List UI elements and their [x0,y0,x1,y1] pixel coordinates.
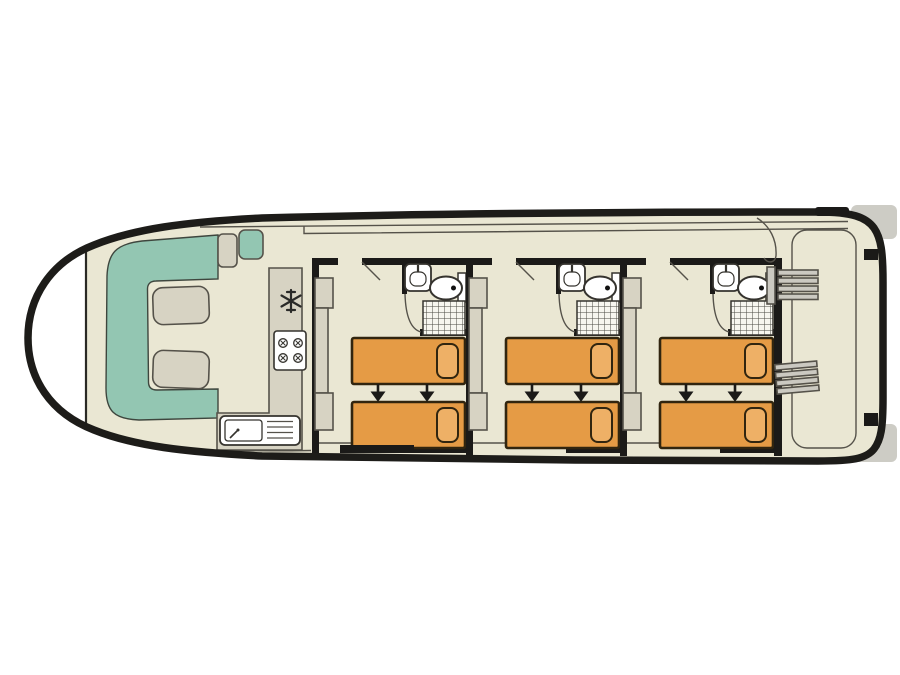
hull-notch-top [864,249,878,260]
cabin-1-bottom-wall [340,445,414,453]
shower-icon [423,301,465,335]
boat-floor-plan [0,0,900,675]
galley-sink-icon [220,416,300,445]
helm-seat-teal [239,230,263,259]
stove-icon [274,331,306,370]
hull-notch-bottom [864,413,878,426]
saloon-table [152,286,209,325]
helm-seat [218,234,237,267]
staircase-top [767,267,818,304]
floor-plan-canvas [0,0,900,675]
bed-pillow [437,344,458,378]
saloon-table [152,350,209,389]
hull-cleat-top [815,207,849,216]
washbasin-icon [405,264,431,291]
bow-deck [0,150,86,530]
bed-pillow [437,408,458,442]
